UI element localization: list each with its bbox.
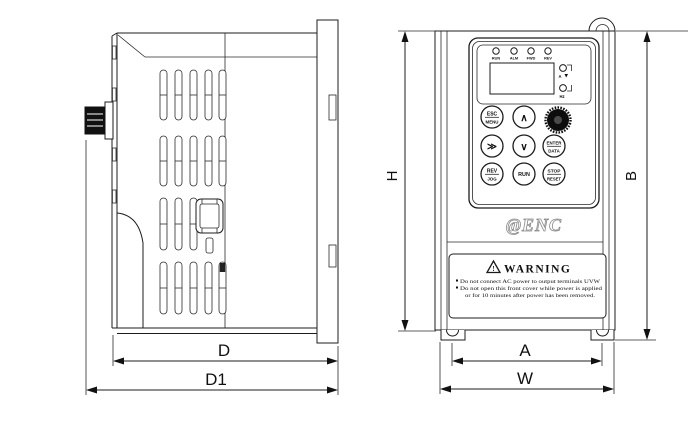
svg-text:REV: REV	[487, 169, 498, 175]
dimension-label-h: H	[384, 171, 401, 182]
down-button: ∨	[513, 135, 535, 157]
status-led-label: FWD	[527, 57, 536, 61]
vent-slots-upper-mid	[160, 136, 226, 186]
unit-led	[560, 65, 567, 72]
vent-slots-lower-mid	[160, 198, 197, 250]
status-led-label: RUN	[492, 57, 500, 61]
shift-button: ≫	[481, 135, 503, 157]
mounting-slot	[329, 95, 336, 120]
mounting-ear	[589, 18, 615, 31]
terminal-cover-curve	[117, 213, 143, 328]
down-arrow-icon: ∨	[520, 142, 527, 153]
unit-led	[560, 85, 567, 92]
up-button: ∧	[513, 106, 535, 128]
side-view	[85, 20, 338, 343]
rev-jog-button: REV JOG	[481, 163, 503, 185]
dimension-label-b: B	[623, 171, 640, 181]
led-display	[490, 63, 554, 94]
dimension-drawing: D D1	[0, 0, 692, 421]
run-button: RUN	[513, 163, 535, 185]
status-led	[493, 48, 499, 54]
side-knob	[85, 102, 113, 139]
svg-text:JOG: JOG	[487, 177, 497, 182]
status-led	[528, 48, 534, 54]
vent-slots-top	[160, 70, 226, 120]
svg-text:STOP: STOP	[548, 169, 562, 175]
mounting-slot	[329, 245, 336, 267]
dimension-label-a: A	[519, 341, 531, 360]
status-led-label: REV	[544, 57, 552, 61]
svg-text:MENU: MENU	[486, 120, 499, 125]
esc-menu-button: ESC MENU	[481, 106, 503, 128]
svg-text:!: !	[492, 265, 494, 273]
brand-logo: @ENC	[506, 215, 562, 235]
svg-text:ESC: ESC	[487, 112, 498, 118]
svg-text:DATA: DATA	[548, 149, 560, 154]
unit-led-label: Hz	[559, 94, 564, 99]
dimension-label-d: D	[218, 341, 230, 360]
up-arrow-icon: ∧	[520, 113, 527, 124]
dimension-label-w: W	[517, 369, 533, 388]
enter-data-button: ENTER DATA	[543, 135, 565, 157]
status-led	[545, 48, 551, 54]
warning-line: Do not connect AC power to output termin…	[460, 279, 600, 285]
stop-reset-button: STOP RESET	[543, 163, 565, 185]
slot-mark	[220, 263, 225, 272]
shift-icon: ≫	[487, 142, 497, 153]
svg-text:RESET: RESET	[547, 177, 561, 182]
warning-line: Do not open this front cover while power…	[460, 285, 602, 292]
warning-line: or for 10 minutes after power has been r…	[465, 292, 595, 299]
warning-title: WARNING	[504, 264, 571, 276]
back-mounting-plate	[317, 20, 338, 343]
svg-text:RUN: RUN	[518, 172, 530, 178]
connector-port	[196, 199, 223, 233]
svg-text:ENTER: ENTER	[547, 141, 563, 146]
front-view: RUN ALM FWD REV A Hz ESC	[435, 18, 615, 340]
dimension-b: B	[615, 31, 688, 340]
warning-label: ! WARNING Do not connect AC power to out…	[449, 254, 606, 318]
mounting-feet	[441, 330, 614, 340]
dimension-a: A	[452, 341, 602, 366]
small-slot	[206, 238, 213, 253]
unit-led-label: A	[558, 74, 561, 79]
vent-slots-bottom	[160, 262, 226, 314]
status-led-label: ALM	[510, 57, 518, 61]
status-led	[511, 48, 517, 54]
dimension-label-d1: D1	[205, 370, 227, 389]
keypad-panel: RUN ALM FWD REV A Hz ESC	[469, 38, 599, 208]
